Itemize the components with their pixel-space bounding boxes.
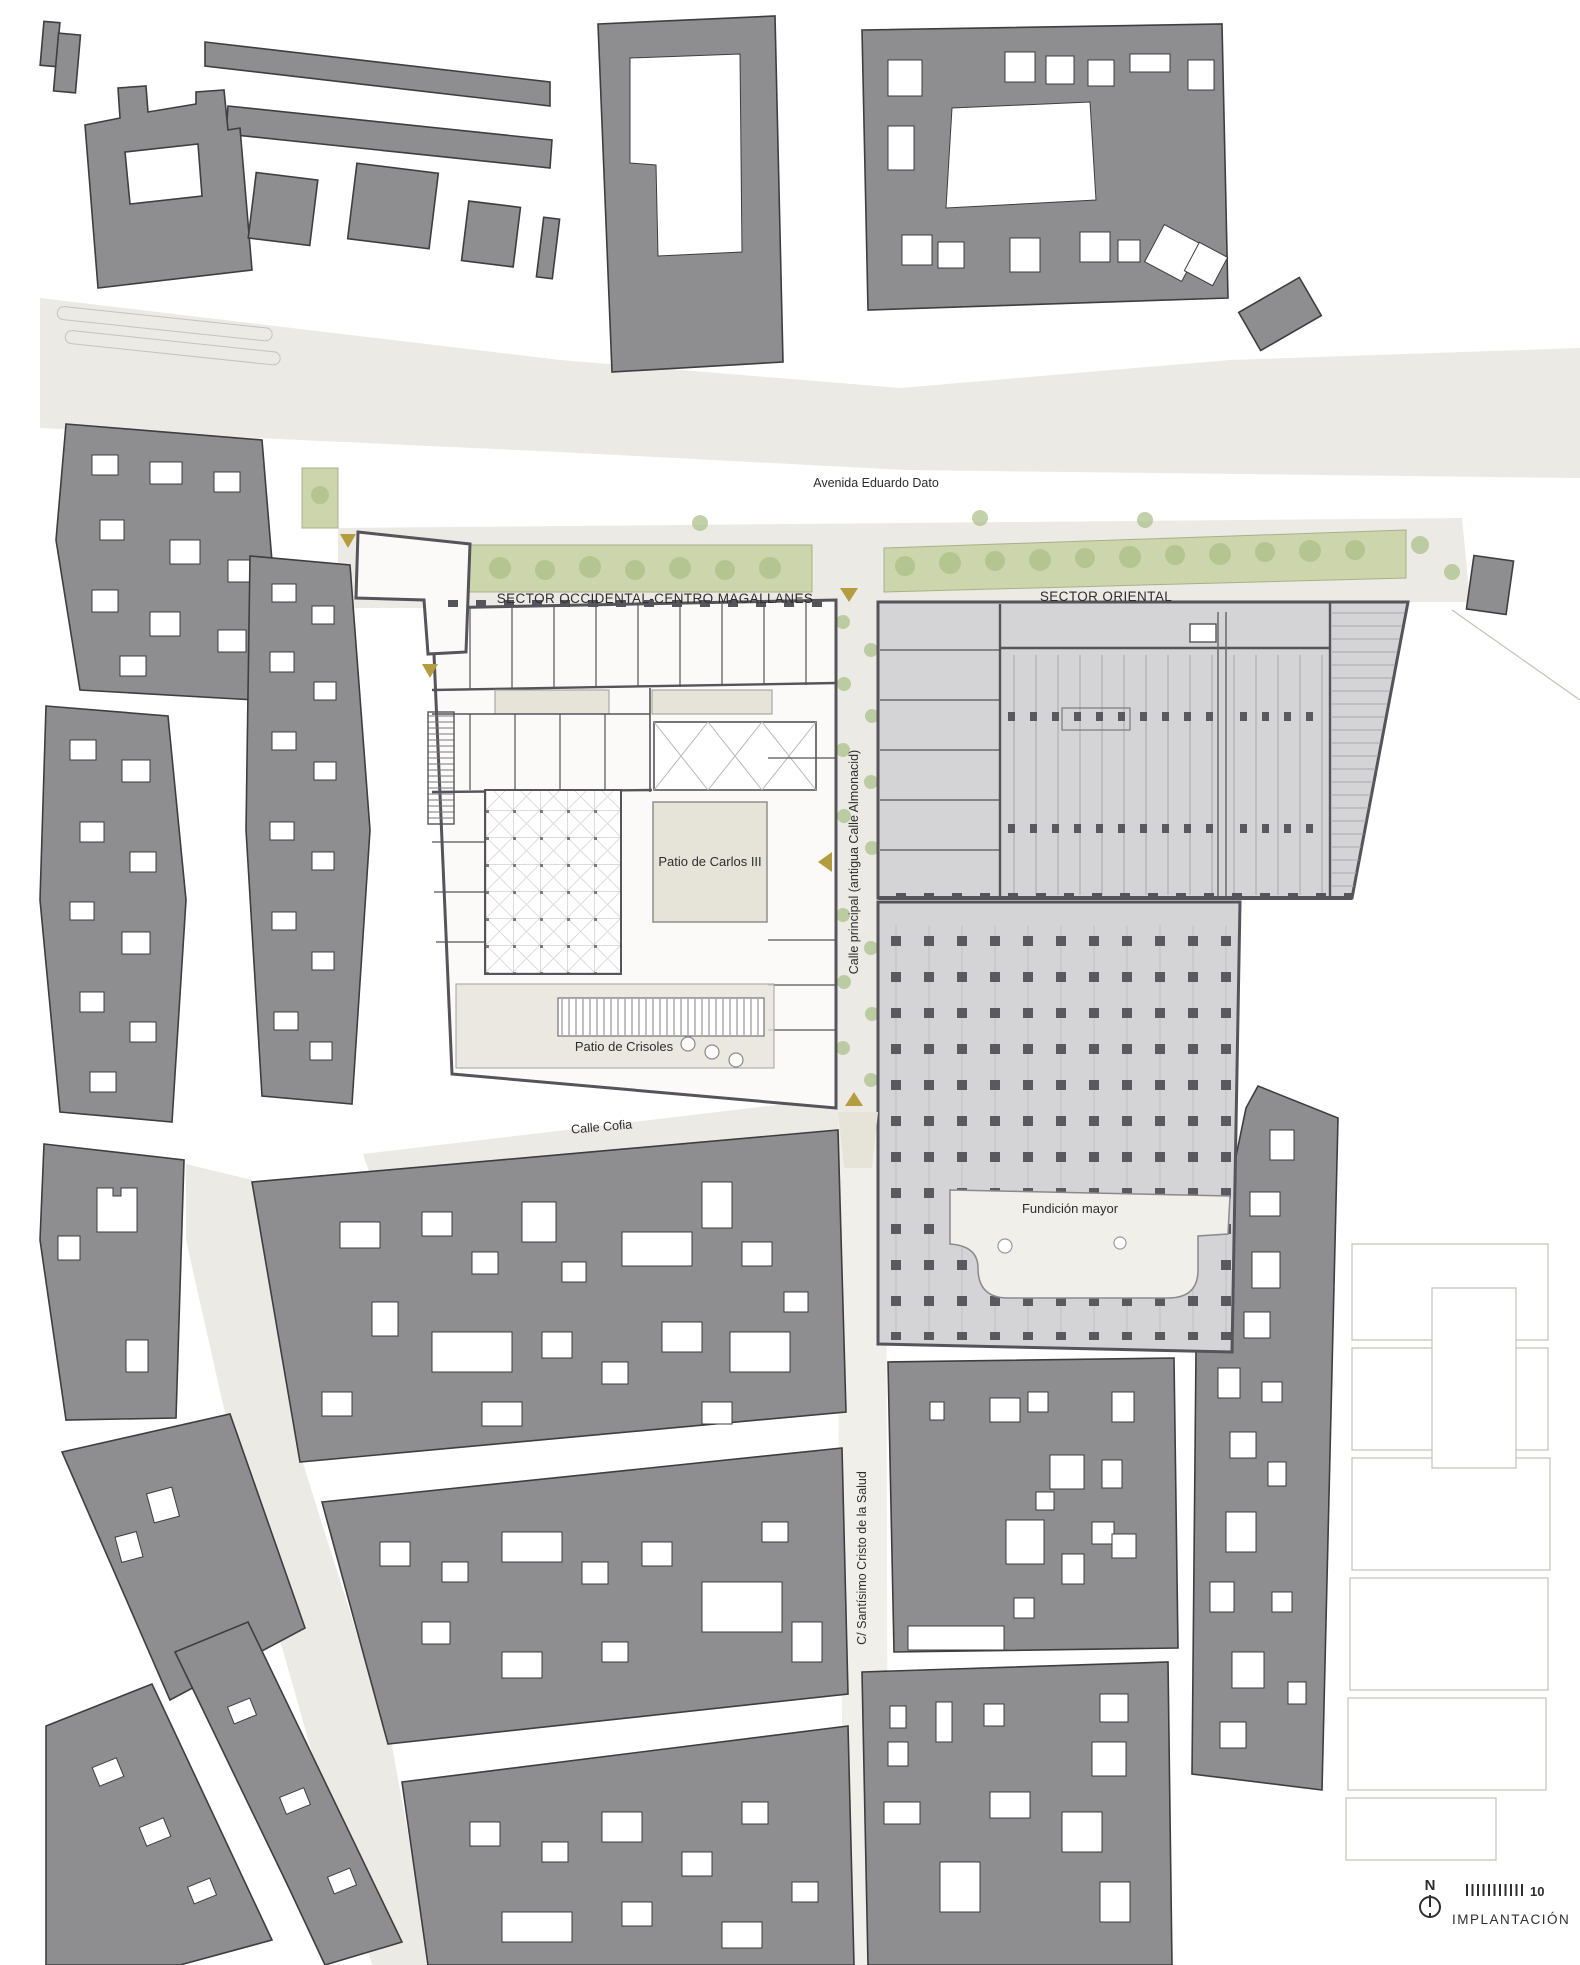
label-calle-principal: Calle principal (antigua Calle Almonacid… bbox=[847, 750, 861, 974]
drawing-title: IMPLANTACIÓN bbox=[1452, 1912, 1570, 1927]
corridor-east bbox=[652, 690, 772, 714]
corridor-west bbox=[495, 690, 609, 714]
staircase bbox=[428, 712, 454, 824]
block-southwest-1 bbox=[40, 1144, 184, 1420]
label-patio-crisoles: Patio de Crisoles bbox=[575, 1039, 674, 1054]
label-calle-santisimo: C/ Santísimo Cristo de la Salud bbox=[855, 1471, 869, 1645]
top-hall-roof-lines bbox=[998, 655, 1330, 895]
label-patio-carlos-iii: Patio de Carlos III bbox=[658, 854, 761, 869]
block-top-right bbox=[862, 24, 1228, 310]
fundicion-circle bbox=[1114, 1237, 1126, 1249]
block-left-upper bbox=[56, 424, 276, 700]
block-south-central-1 bbox=[252, 1130, 846, 1462]
block-southeast-1 bbox=[888, 1358, 1178, 1652]
block-top-middle bbox=[598, 16, 783, 372]
label-sector-occidental: SECTOR OCCIDENTAL-CENTRO MAGALLANES bbox=[497, 591, 814, 606]
cofia-entrance-ramp bbox=[838, 1112, 878, 1168]
ne-room-feature bbox=[1190, 624, 1216, 642]
scale-value: 10 bbox=[1530, 1884, 1544, 1899]
north-label: N bbox=[1425, 1877, 1436, 1894]
vaulted-hall bbox=[485, 790, 621, 974]
label-fundicion-mayor: Fundición mayor bbox=[1022, 1201, 1119, 1216]
block-left-lower bbox=[40, 706, 186, 1122]
label-avenida-eduardo-dato: Avenida Eduardo Dato bbox=[813, 476, 939, 490]
vaulted-range bbox=[654, 722, 816, 790]
block-left-inner-strip bbox=[246, 556, 370, 1104]
site-plan-drawing: Avenida Eduardo Dato SECTOR OCCIDENTAL-C… bbox=[0, 0, 1580, 1965]
patio-crisoles bbox=[456, 984, 774, 1068]
parcels-far-right bbox=[1346, 1244, 1550, 1860]
fundicion-circle bbox=[998, 1239, 1012, 1253]
site-plan-page: Avenida Eduardo Dato SECTOR OCCIDENTAL-C… bbox=[0, 0, 1580, 1965]
block-southeast-2 bbox=[862, 1662, 1172, 1965]
label-sector-oriental: SECTOR ORIENTAL bbox=[1040, 589, 1172, 604]
block-avenue-east-sliver bbox=[1466, 555, 1513, 614]
